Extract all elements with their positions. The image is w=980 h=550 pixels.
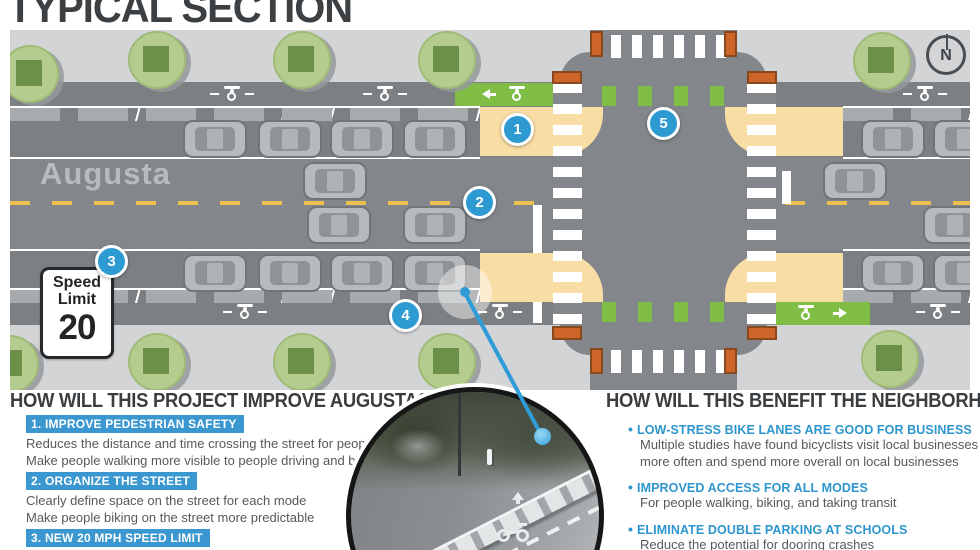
tree-icon	[273, 333, 331, 390]
curb-ramp-icon	[724, 348, 737, 374]
bike-lane-green	[776, 302, 870, 325]
speed-sign-word2: Limit	[43, 292, 111, 308]
parking-lane-marking	[10, 106, 480, 121]
lane-line	[843, 249, 970, 251]
crosswalk	[747, 83, 776, 325]
bike-crossing-dash	[674, 302, 688, 322]
crosswalk	[611, 35, 728, 58]
car-icon	[330, 254, 394, 292]
speed-sign-word1: Speed	[43, 274, 111, 292]
benefit-line: Multiple studies have found bicyclists v…	[640, 437, 980, 454]
infographic-root: TYPICAL SECTION	[0, 0, 980, 550]
tree-icon	[853, 32, 911, 90]
bike-arrow-right-icon	[832, 308, 852, 319]
car-icon	[823, 162, 887, 200]
parking-lane-marking	[843, 106, 970, 121]
photo-bike-marking	[497, 521, 531, 543]
car-icon	[403, 120, 467, 158]
bike-symbol-icon	[903, 86, 947, 102]
photo-inset	[346, 387, 604, 550]
car-icon	[258, 120, 322, 158]
tree-icon	[273, 31, 331, 89]
callout-3: 3	[95, 245, 128, 278]
stop-bar	[782, 171, 791, 204]
tree-icon	[128, 333, 186, 390]
benefit-item: IMPROVED ACCESS FOR ALL MODES For people…	[628, 479, 980, 512]
curb-extension	[480, 253, 603, 302]
benefits-heading: HOW WILL THIS BENEFIT THE NEIGHBORHOOD?	[606, 390, 980, 413]
cross-street-roadway	[590, 30, 737, 390]
benefit-item: ELIMINATE DOUBLE PARKING AT SCHOOLS Redu…	[628, 521, 980, 550]
bike-symbol-icon	[210, 86, 254, 102]
bike-symbol-icon	[784, 305, 828, 321]
north-compass: N	[926, 35, 966, 75]
car-icon	[330, 120, 394, 158]
curb-ramp-icon	[747, 326, 777, 340]
benefit-item: LOW-STRESS BIKE LANES ARE GOOD FOR BUSIN…	[628, 421, 980, 470]
bike-crossing-dash	[602, 302, 616, 322]
bike-symbol-icon	[363, 86, 407, 102]
car-icon	[923, 206, 970, 244]
improvement-line: Make people walking more visible to peop…	[26, 452, 356, 469]
callout-4: 4	[389, 299, 422, 332]
curb-ramp-icon	[552, 71, 582, 84]
bike-crossing-dash	[602, 86, 616, 106]
compass-label: N	[929, 47, 963, 65]
improvement-line: Make people biking on the street more pr…	[26, 509, 356, 526]
curb-ramp-icon	[590, 348, 603, 374]
photo-arrow-marking	[512, 486, 524, 504]
callout-5: 5	[647, 107, 680, 140]
curb-extension	[725, 253, 843, 302]
improvement-label: 2. ORGANIZE THE STREET	[26, 472, 197, 490]
benefit-label: ELIMINATE DOUBLE PARKING AT SCHOOLS	[628, 521, 980, 537]
photo-light-patch	[391, 429, 446, 464]
curb-extension	[725, 107, 843, 156]
improvement-line: Clearly define space on the street for e…	[26, 492, 356, 509]
center-line	[785, 201, 970, 205]
tree-icon	[418, 333, 476, 390]
street-name-label: Augusta	[40, 156, 171, 192]
lane-line	[10, 249, 480, 251]
car-icon	[933, 254, 970, 292]
tree-icon	[128, 31, 186, 89]
car-icon	[403, 206, 467, 244]
benefit-line: For people walking, biking, and taking t…	[640, 495, 980, 512]
curb-ramp-icon	[724, 31, 737, 57]
speed-sign-value: 20	[43, 308, 111, 348]
improvement-item: 2. ORGANIZE THE STREET Clearly define sp…	[26, 469, 356, 526]
car-icon	[861, 120, 925, 158]
tree-icon	[10, 335, 39, 390]
bike-arrow-left-icon	[477, 89, 497, 100]
photo-bollard	[487, 449, 492, 465]
callout-1: 1	[501, 113, 534, 146]
page-title: TYPICAL SECTION	[8, 0, 352, 32]
bike-crossing-dash	[710, 86, 724, 106]
tree-icon	[861, 330, 919, 388]
benefit-label: LOW-STRESS BIKE LANES ARE GOOD FOR BUSIN…	[628, 421, 980, 437]
curb-extension	[480, 107, 603, 156]
curb-ramp-icon	[747, 71, 777, 84]
car-icon	[183, 120, 247, 158]
improvement-item: 1. IMPROVE PEDESTRIAN SAFETY Reduces the…	[26, 412, 356, 469]
bike-symbol-icon	[223, 304, 267, 320]
bike-crossing-dash	[710, 302, 724, 322]
car-icon	[183, 254, 247, 292]
photo-pole	[458, 392, 461, 476]
bike-lane-green	[455, 83, 553, 106]
callout-2: 2	[463, 186, 496, 219]
improvement-item: 3. NEW 20 MPH SPEED LIMIT Lower speeds r…	[26, 526, 356, 550]
tree-icon	[418, 31, 476, 89]
improvement-line: Reduces the distance and time crossing t…	[26, 435, 356, 452]
curb-ramp-icon	[590, 31, 603, 57]
bike-symbol-icon	[916, 304, 960, 320]
bike-crossing-dash	[674, 86, 688, 106]
crosswalk	[611, 350, 728, 373]
improvement-label: 1. IMPROVE PEDESTRIAN SAFETY	[26, 415, 244, 433]
benefit-label: IMPROVED ACCESS FOR ALL MODES	[628, 479, 980, 495]
car-icon	[303, 162, 367, 200]
car-icon	[861, 254, 925, 292]
curb-ramp-icon	[552, 326, 582, 340]
bike-crossing-dash	[638, 302, 652, 322]
bike-crossing-dash	[638, 86, 652, 106]
car-icon	[307, 206, 371, 244]
improvement-label: 3. NEW 20 MPH SPEED LIMIT	[26, 529, 210, 547]
crosswalk	[553, 83, 582, 325]
car-icon	[933, 120, 970, 158]
benefit-line: more often and spend more overall on loc…	[640, 454, 980, 471]
benefit-line: Reduce the potential for dooring crashes	[640, 537, 980, 550]
bike-symbol-icon	[495, 86, 539, 102]
car-icon	[258, 254, 322, 292]
speed-limit-sign: Speed Limit 20	[40, 267, 114, 359]
leader-dot	[534, 428, 551, 445]
